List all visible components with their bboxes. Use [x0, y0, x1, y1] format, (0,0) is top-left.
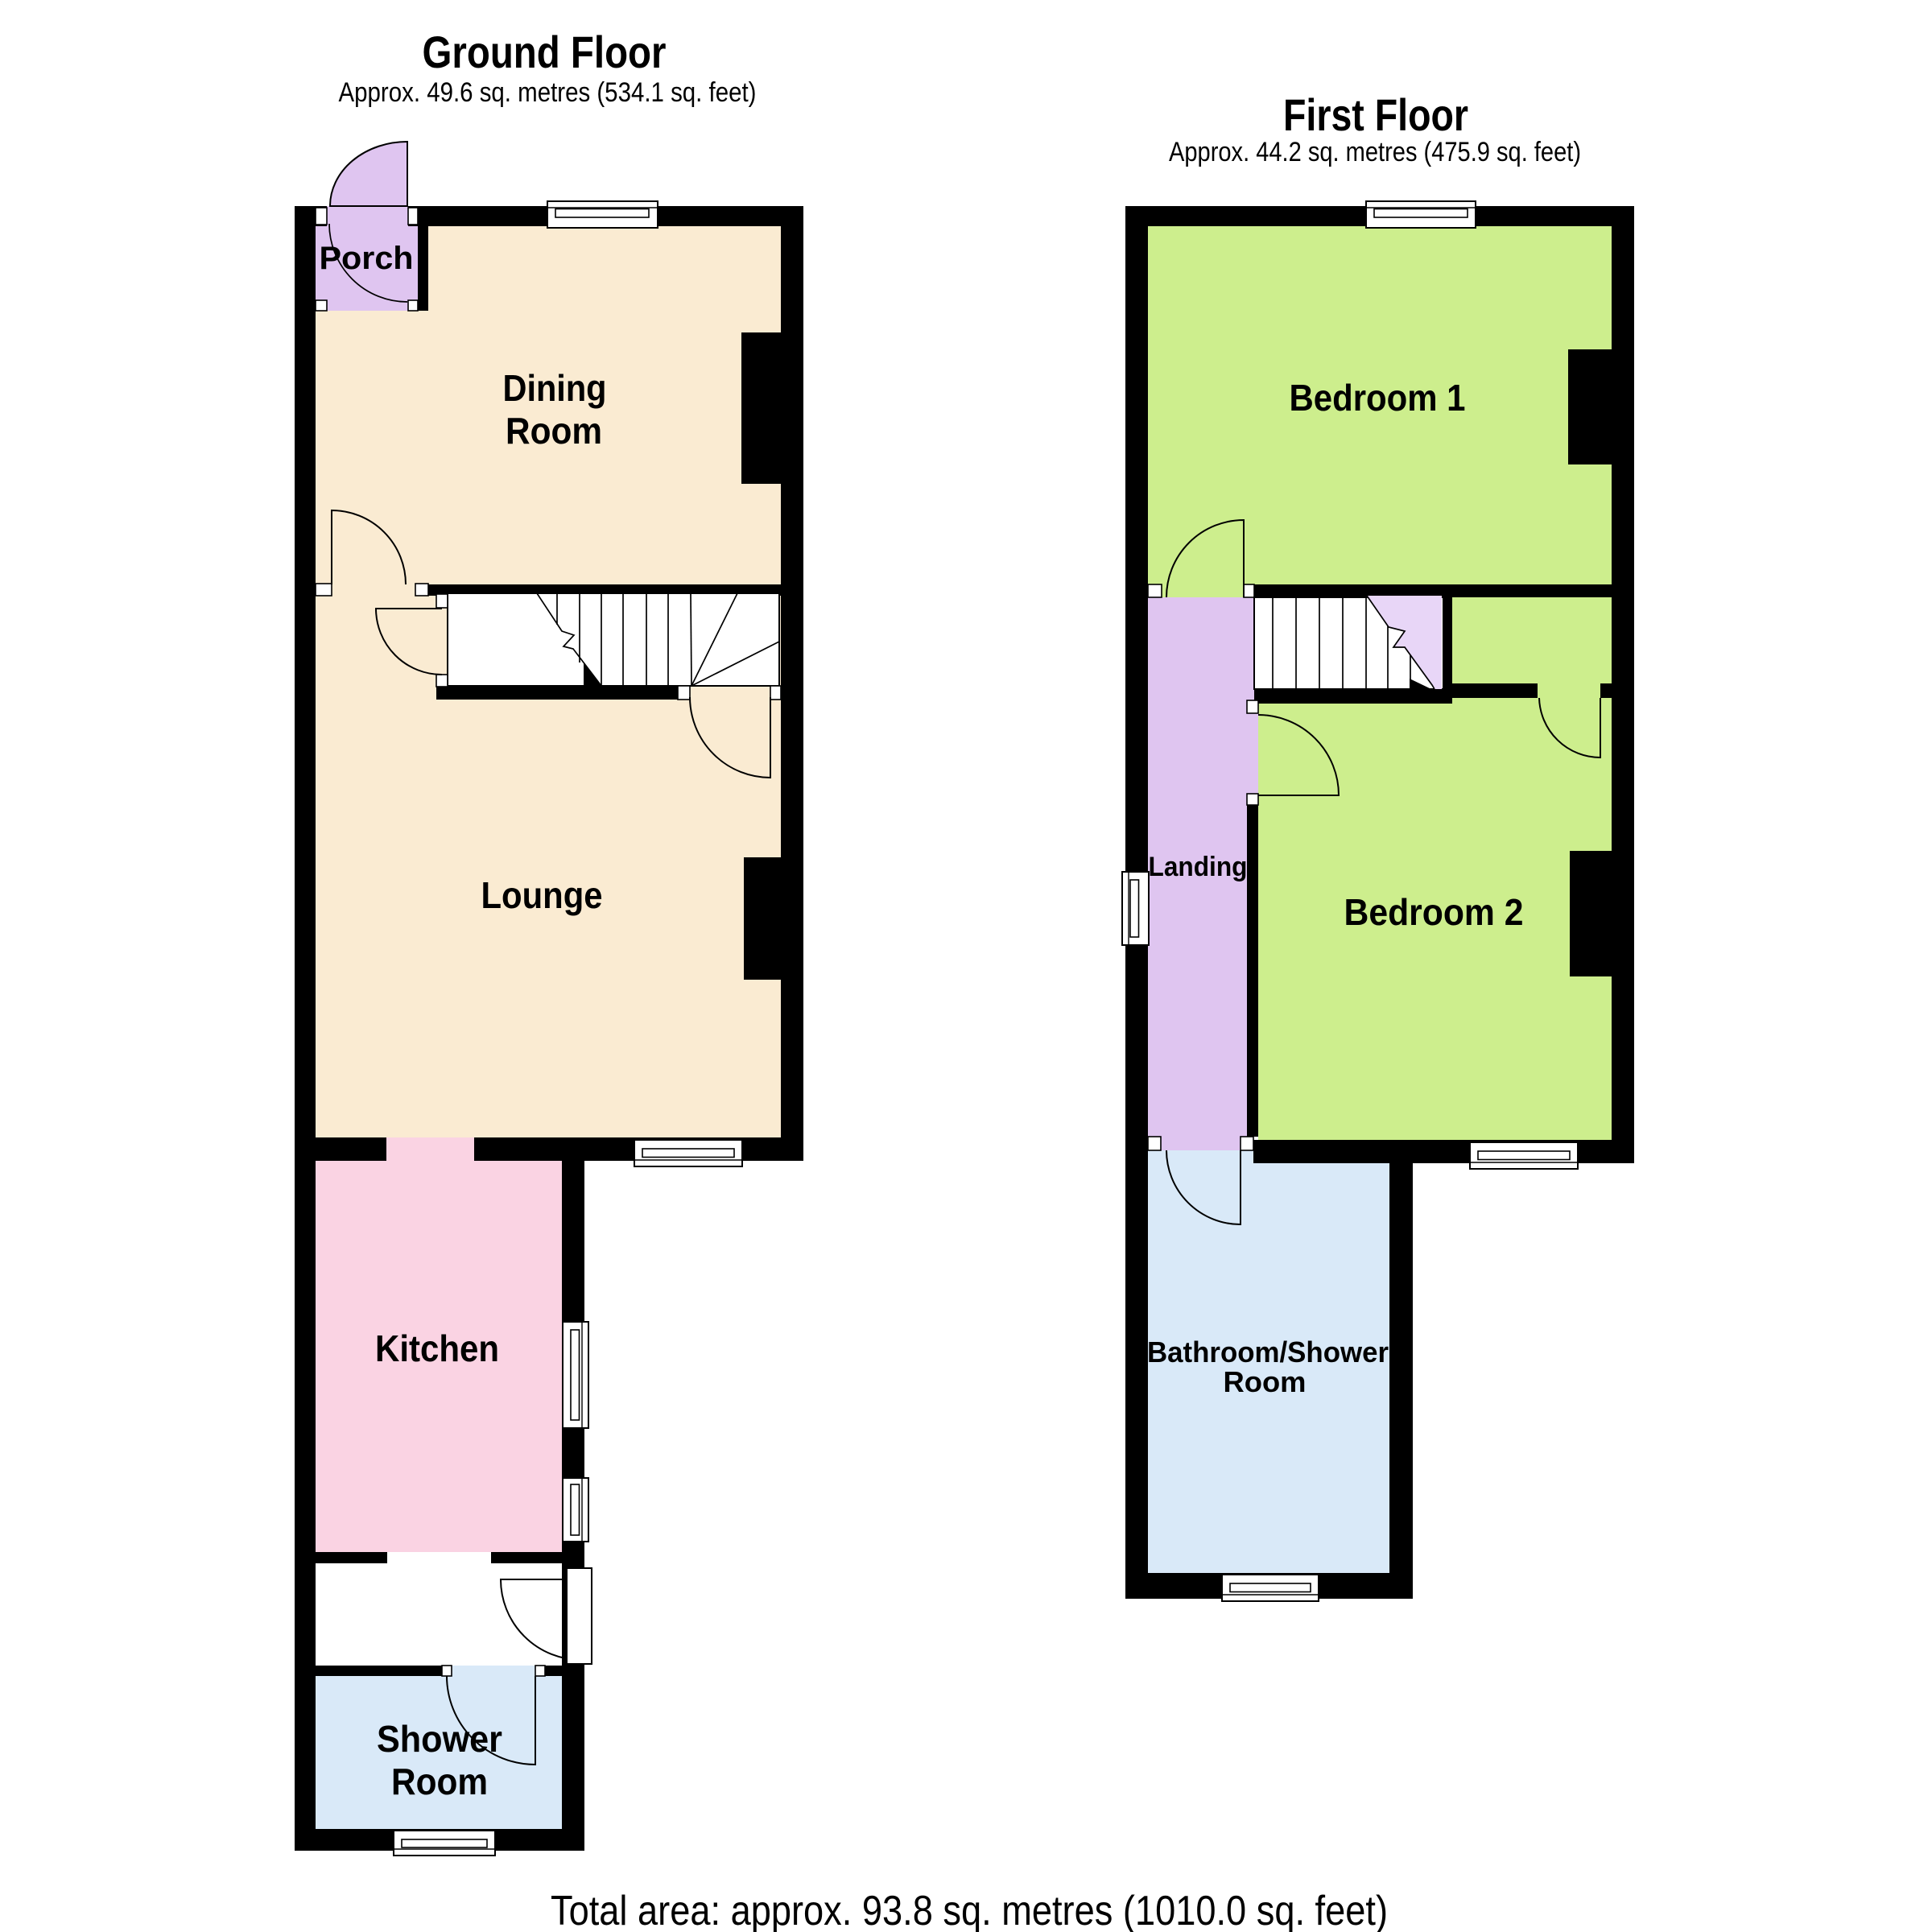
- svg-text:Bathroom/Shower: Bathroom/Shower: [1147, 1335, 1389, 1368]
- svg-text:Room: Room: [391, 1761, 488, 1802]
- svg-text:Landing: Landing: [1149, 852, 1248, 882]
- svg-text:Lounge: Lounge: [481, 874, 603, 916]
- svg-text:Bedroom 1: Bedroom 1: [1290, 377, 1466, 419]
- svg-text:Dining: Dining: [503, 367, 607, 409]
- svg-text:Shower: Shower: [377, 1718, 502, 1760]
- svg-text:Ground Floor: Ground Floor: [423, 27, 667, 77]
- svg-text:Approx. 44.2 sq. metres (475.9: Approx. 44.2 sq. metres (475.9 sq. feet): [1169, 137, 1581, 167]
- svg-text:Porch: Porch: [320, 241, 414, 276]
- svg-text:Room: Room: [506, 410, 602, 452]
- svg-text:Bedroom 2: Bedroom 2: [1344, 891, 1524, 933]
- svg-text:First Floor: First Floor: [1283, 89, 1468, 140]
- svg-text:Kitchen: Kitchen: [375, 1327, 499, 1369]
- svg-text:Total area: approx. 93.8 sq. m: Total area: approx. 93.8 sq. metres (101…: [551, 1888, 1388, 1932]
- svg-text:Room: Room: [1224, 1365, 1307, 1398]
- svg-text:Approx. 49.6 sq. metres (534.1: Approx. 49.6 sq. metres (534.1 sq. feet): [339, 77, 757, 108]
